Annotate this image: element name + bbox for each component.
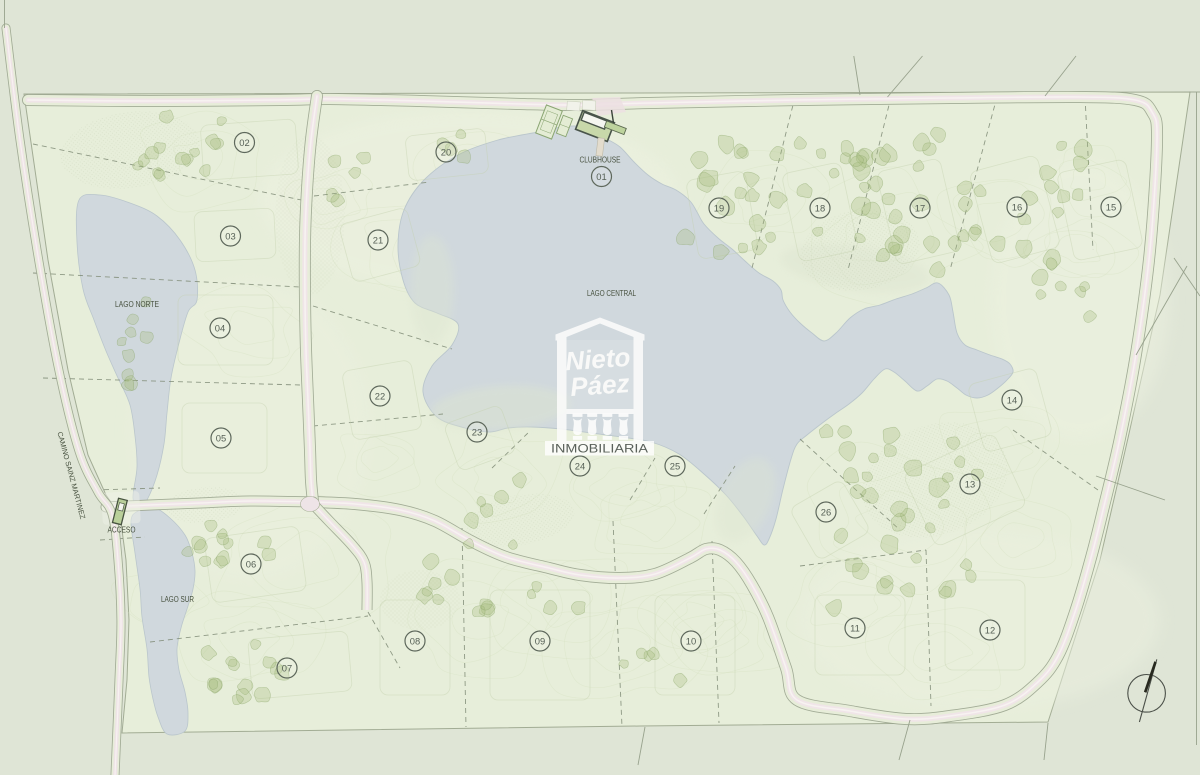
svg-text:10: 10 <box>686 636 696 647</box>
svg-text:12: 12 <box>985 625 995 636</box>
svg-text:CLUBHOUSE: CLUBHOUSE <box>580 155 621 165</box>
svg-text:LAGO NORTE: LAGO NORTE <box>115 300 159 309</box>
svg-text:03: 03 <box>225 231 235 242</box>
svg-text:07: 07 <box>282 663 292 674</box>
svg-text:04: 04 <box>215 323 225 334</box>
svg-text:22: 22 <box>375 391 385 402</box>
svg-text:24: 24 <box>575 461 585 472</box>
svg-text:18: 18 <box>815 203 825 214</box>
svg-text:LAGO SUR: LAGO SUR <box>161 595 194 604</box>
svg-text:09: 09 <box>535 636 545 647</box>
svg-text:13: 13 <box>965 479 975 490</box>
svg-text:05: 05 <box>216 433 226 444</box>
svg-text:14: 14 <box>1007 395 1017 406</box>
svg-text:11: 11 <box>850 623 860 634</box>
svg-text:08: 08 <box>410 636 420 647</box>
svg-text:17: 17 <box>915 203 925 214</box>
svg-text:26: 26 <box>821 507 831 518</box>
svg-text:Páez: Páez <box>569 368 630 402</box>
svg-text:23: 23 <box>472 427 482 438</box>
svg-text:25: 25 <box>670 461 680 472</box>
svg-text:01: 01 <box>596 171 606 182</box>
svg-text:ACCESO: ACCESO <box>108 526 136 535</box>
svg-text:LAGO CENTRAL: LAGO CENTRAL <box>587 289 636 298</box>
svg-text:15: 15 <box>1106 202 1116 213</box>
svg-text:21: 21 <box>373 235 383 246</box>
svg-text:19: 19 <box>714 203 724 214</box>
svg-text:02: 02 <box>239 137 249 148</box>
svg-text:INMOBILIARIA: INMOBILIARIA <box>551 442 648 456</box>
svg-text:20: 20 <box>441 147 451 158</box>
svg-text:06: 06 <box>246 559 256 570</box>
svg-text:16: 16 <box>1012 202 1022 213</box>
